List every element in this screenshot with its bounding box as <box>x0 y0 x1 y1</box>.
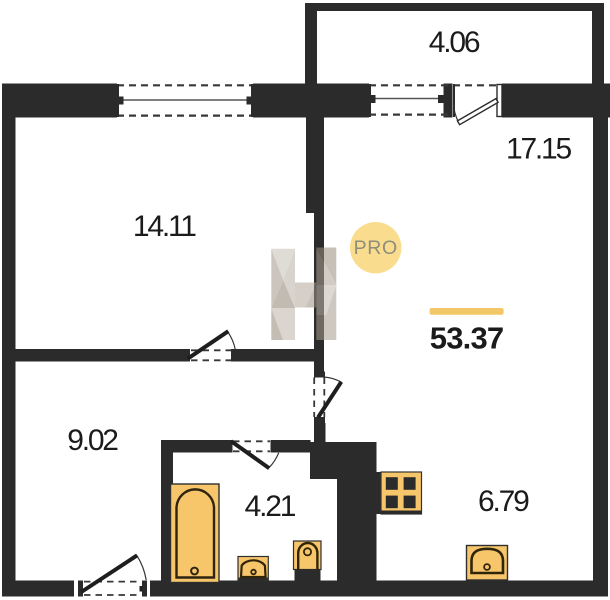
svg-text:14.11: 14.11 <box>133 210 196 243</box>
svg-text:53.37: 53.37 <box>430 321 504 356</box>
svg-text:4.06: 4.06 <box>429 26 480 59</box>
svg-text:6.79: 6.79 <box>478 485 529 518</box>
svg-text:PRO: PRO <box>354 237 398 259</box>
svg-text:17.15: 17.15 <box>506 133 572 166</box>
svg-text:9.02: 9.02 <box>67 424 118 457</box>
svg-text:4.21: 4.21 <box>245 490 296 523</box>
